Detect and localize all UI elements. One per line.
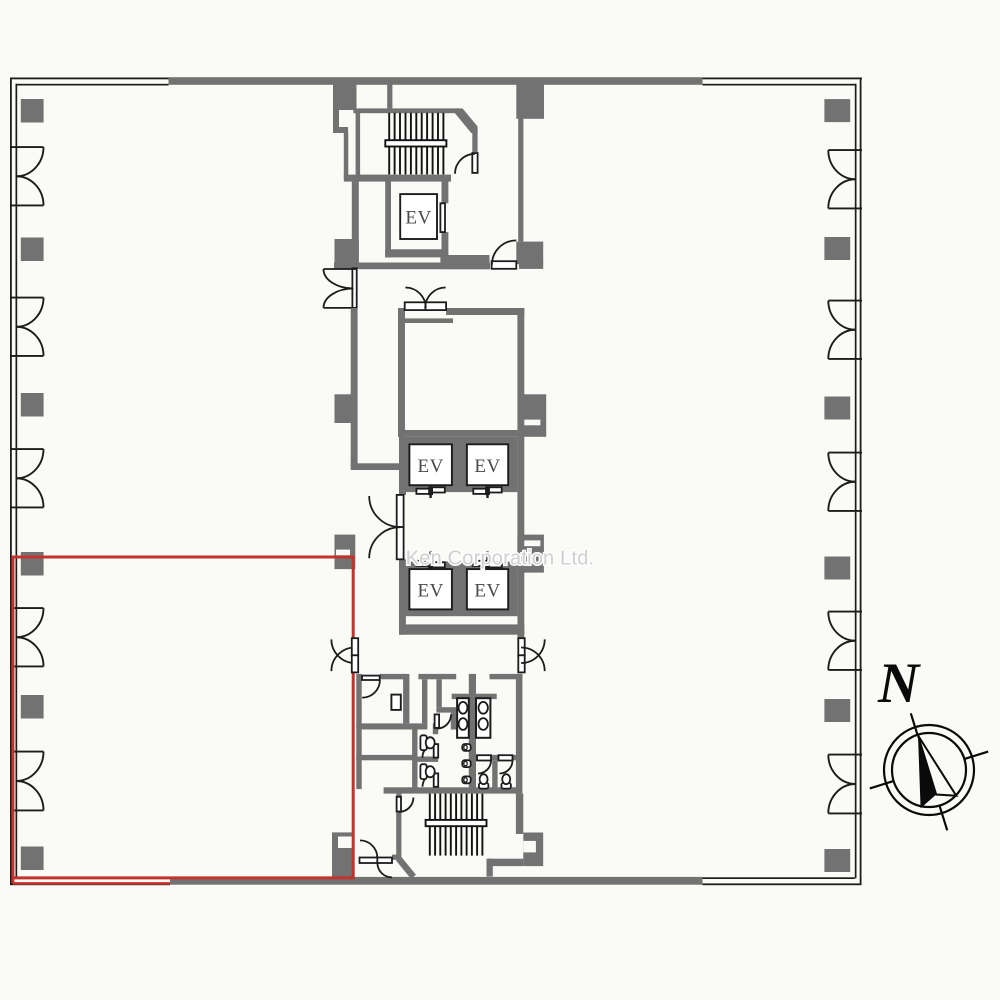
svg-text:Ken Corporation Ltd.: Ken Corporation Ltd. — [406, 548, 595, 570]
svg-text:EV: EV — [417, 456, 443, 477]
svg-text:N: N — [877, 652, 921, 715]
svg-text:EV: EV — [474, 580, 500, 601]
svg-text:EV: EV — [405, 208, 431, 229]
svg-text:EV: EV — [417, 580, 443, 601]
svg-text:EV: EV — [474, 456, 500, 477]
